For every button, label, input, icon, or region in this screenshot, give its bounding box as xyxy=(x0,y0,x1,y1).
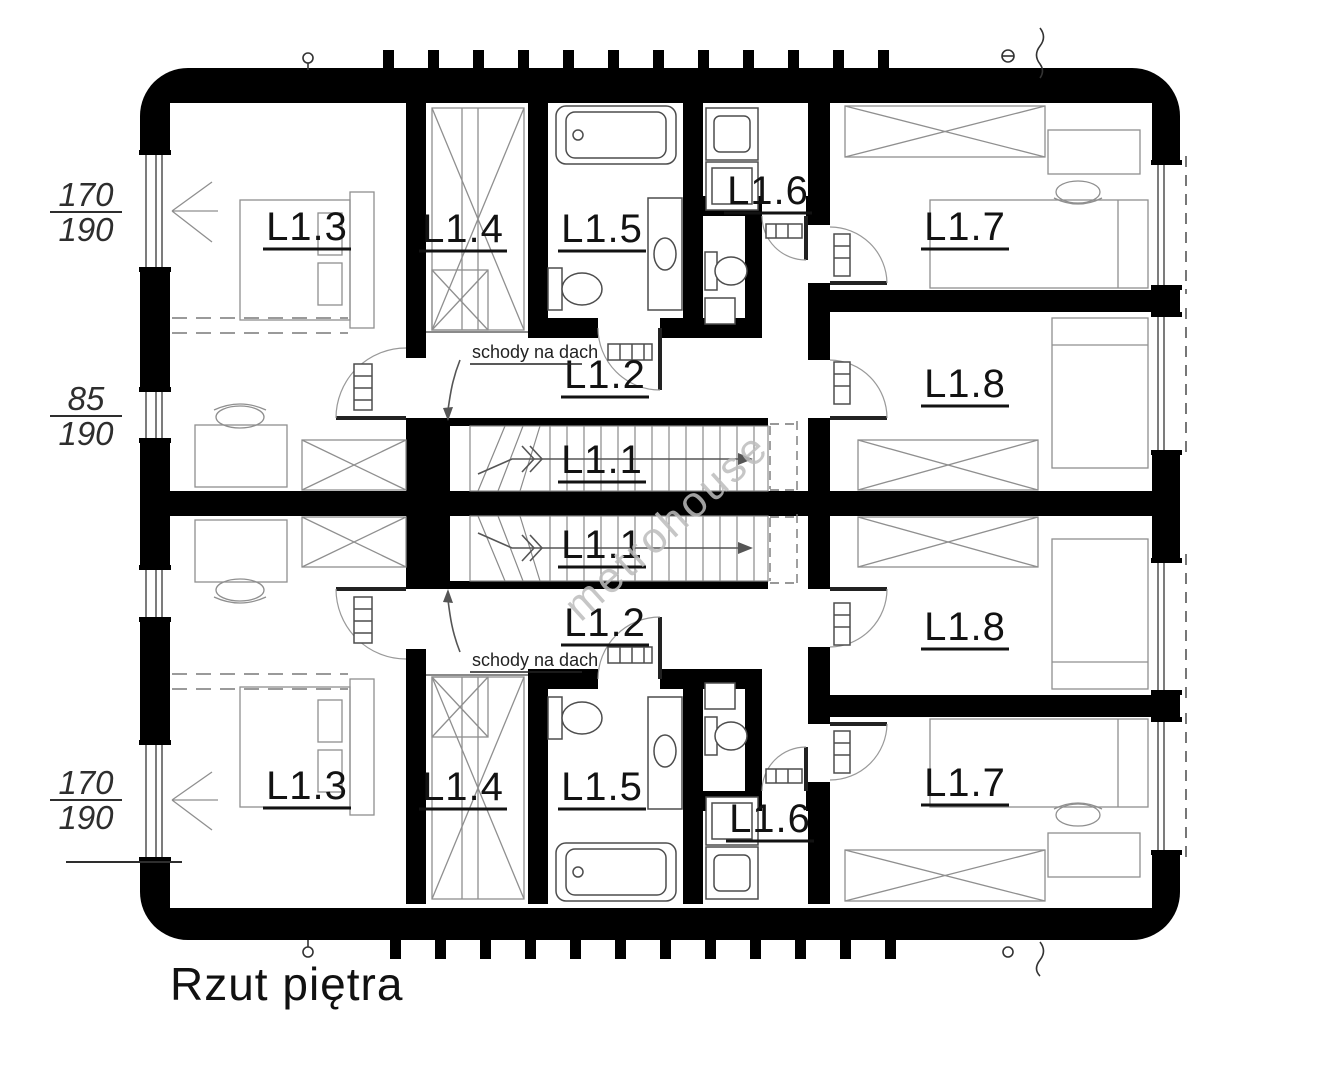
window-right-1 xyxy=(1151,156,1186,294)
stairs-note-upper-text: schody na dach xyxy=(472,342,598,362)
radiator xyxy=(608,647,652,663)
dimension-left-bottom-numerator: 170 xyxy=(58,764,114,801)
window-right-2 xyxy=(1151,308,1186,459)
room-label-l1-3-lower: L1.3 xyxy=(266,764,348,808)
room-label-l1-7-lower: L1.7 xyxy=(924,761,1006,805)
window-left-middle-lower xyxy=(139,565,171,622)
dimension-left-top: 170 190 xyxy=(50,176,122,248)
room-label-l1-1-upper: L1.1 xyxy=(561,438,643,482)
dimension-left-middle-denominator: 190 xyxy=(58,415,114,452)
radiator xyxy=(834,362,850,404)
radiator xyxy=(354,364,372,410)
washer xyxy=(706,108,758,160)
room-label-l1-3-upper: L1.3 xyxy=(266,205,348,249)
dimension-left-middle-numerator: 85 xyxy=(68,380,105,417)
window-right-4 xyxy=(1151,713,1186,859)
sink xyxy=(705,298,735,324)
bathtub xyxy=(556,106,676,164)
bathtub xyxy=(556,843,676,901)
radiator xyxy=(766,224,802,238)
floor-plan-page: L1.3 L1.4 L1.5 L1.6 L1.7 L1.8 L1.2 L1.1 … xyxy=(0,0,1344,1080)
room-label-l1-6-upper: L1.6 xyxy=(727,169,809,213)
dimension-left-top-denominator: 190 xyxy=(58,211,114,248)
radiator xyxy=(766,769,802,783)
radiator xyxy=(834,234,850,276)
room-label-l1-8-lower: L1.8 xyxy=(924,605,1006,649)
window-left-middle-upper xyxy=(139,387,171,443)
plan-title: Rzut piętra xyxy=(170,958,403,1010)
room-label-l1-5-upper: L1.5 xyxy=(561,207,643,251)
washer xyxy=(706,847,758,899)
dimension-left-middle: 85 190 xyxy=(50,380,122,452)
room-label-l1-4-upper: L1.4 xyxy=(422,207,504,251)
room-label-l1-4-lower: L1.4 xyxy=(422,765,504,809)
radiator xyxy=(354,597,372,643)
window-right-3 xyxy=(1151,554,1186,699)
washbasin-counter xyxy=(648,198,682,310)
dimension-left-top-numerator: 170 xyxy=(58,176,114,213)
floor-plan-drawing: L1.3 L1.4 L1.5 L1.6 L1.7 L1.8 L1.2 L1.1 … xyxy=(0,0,1344,1080)
room-label-l1-7-upper: L1.7 xyxy=(924,205,1006,249)
radiator xyxy=(834,603,850,645)
stairs-note-lower-text: schody na dach xyxy=(472,650,598,670)
dimension-left-bottom-denominator: 190 xyxy=(58,799,114,836)
radiator xyxy=(834,731,850,773)
room-label-l1-6-lower: L1.6 xyxy=(729,797,811,841)
room-label-l1-8-upper: L1.8 xyxy=(924,362,1006,406)
room-label-l1-5-lower: L1.5 xyxy=(561,765,643,809)
washbasin-counter xyxy=(648,697,682,809)
sink xyxy=(705,683,735,709)
